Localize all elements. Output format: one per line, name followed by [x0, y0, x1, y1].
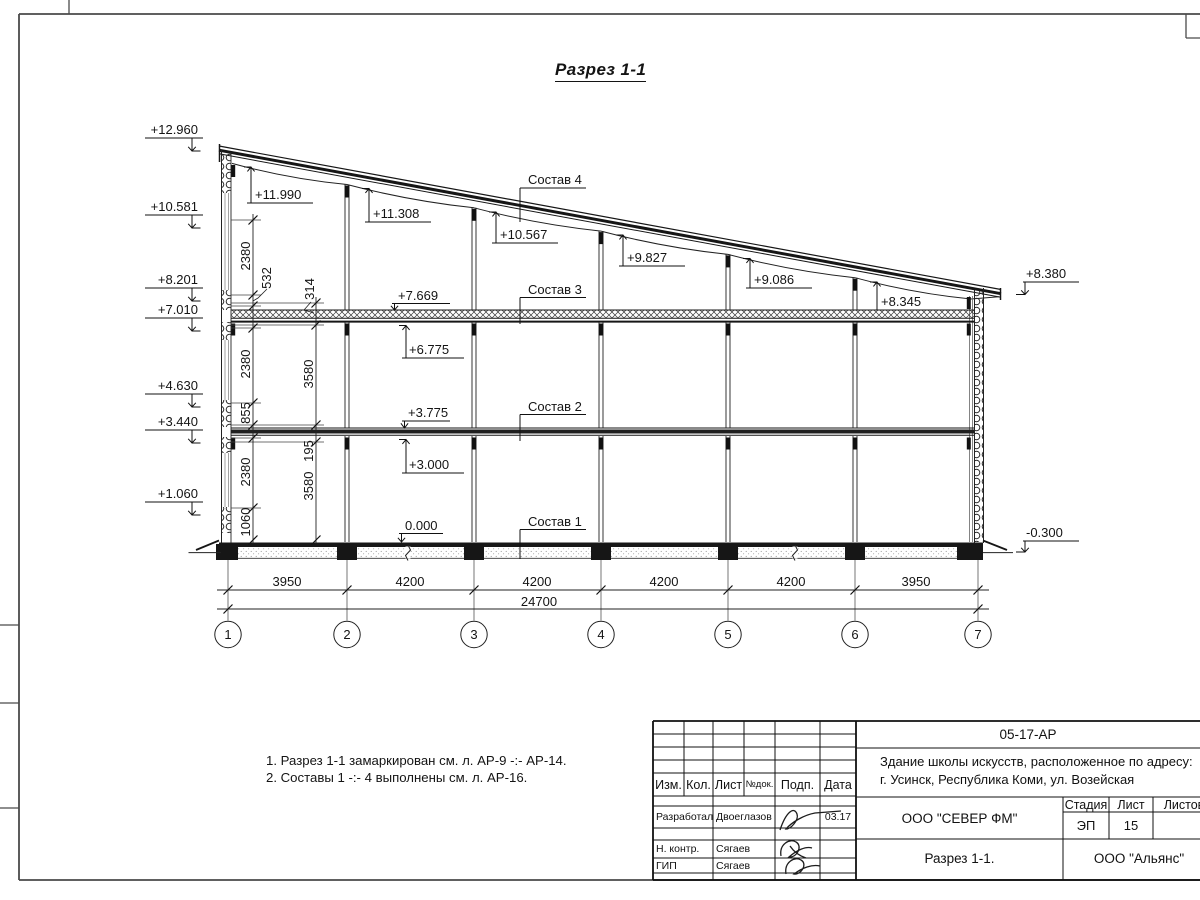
dim-label: 1060: [239, 502, 253, 542]
dim-label: 2380: [239, 236, 253, 276]
titleblock-role: Н. контр.: [656, 840, 712, 858]
composition-label: Состав 3: [528, 283, 588, 297]
composition-label: Состав 4: [528, 173, 588, 187]
drawing-sheet: Разрез 1-1 +12.960 +10.581 +8.201 +7.010…: [0, 0, 1200, 900]
titleblock-col-data: Дата: [820, 773, 856, 796]
elevation-marks-left: [145, 138, 203, 515]
dim-label: 2380: [239, 452, 253, 492]
roof-band: [219, 144, 1001, 300]
titleblock-sheets-label: Листов: [1153, 797, 1200, 812]
titleblock-project-line2: г. Усинск, Республика Коми, ул. Возейска…: [880, 771, 1200, 788]
titleblock-stage-value: ЭП: [1063, 812, 1109, 839]
titleblock-col-izm: Изм.: [653, 773, 684, 796]
elevation-marks-right: [1016, 282, 1079, 552]
left-wall: [222, 150, 232, 543]
note-line: 2. Составы 1 -:- 4 выполнены см. л. АР-1…: [266, 771, 527, 785]
drawing-title: Разрез 1-1: [555, 60, 646, 82]
dim-label: 3580: [302, 466, 316, 506]
dim-label: 4200: [642, 575, 686, 589]
titleblock-role: Разработал: [656, 806, 712, 828]
dim-label: 2380: [239, 344, 253, 384]
titleblock-name: Сягаев: [716, 840, 774, 858]
titleblock-name: Сягаев: [716, 858, 774, 873]
elevation-label: +11.308: [373, 207, 429, 221]
drawing-title-wrap: Разрез 1-1: [555, 60, 655, 80]
elevation-label: +8.345: [881, 295, 937, 309]
elevation-label: +11.990: [255, 188, 311, 202]
elevation-label: +1.060: [146, 487, 198, 501]
titleblock-col-ndok: №док.: [744, 773, 775, 796]
axis-bubble-label: 6: [842, 628, 868, 642]
dim-label: 4200: [388, 575, 432, 589]
titleblock-company: ООО "СЕВЕР ФМ": [856, 797, 1063, 839]
elevation-label: +3.440: [146, 415, 198, 429]
dim-label: 3950: [265, 575, 309, 589]
axis-bubble-label: 2: [334, 628, 360, 642]
titleblock-doc-number: 05-17-АР: [856, 721, 1200, 748]
dim-label: 3950: [894, 575, 938, 589]
elevation-label: +4.630: [146, 379, 198, 393]
elevation-marks-floors: [391, 304, 464, 543]
dim-label: 314: [303, 272, 317, 306]
elevation-label: +3.000: [409, 458, 461, 472]
titleblock-sheet-label: Лист: [1109, 797, 1153, 812]
composition-label: Состав 2: [528, 400, 588, 414]
titleblock-date: 03.17: [820, 806, 856, 828]
titleblock-stage-label: Стадия: [1063, 797, 1109, 812]
floor-slab-1: [231, 428, 974, 435]
elevation-label: +12.960: [146, 123, 198, 137]
elevation-label: +8.201: [146, 273, 198, 287]
floor-slab-2: [231, 310, 974, 322]
dim-label: 532: [260, 261, 274, 295]
titleblock-col-podp: Подп.: [775, 773, 820, 796]
titleblock-role: ГИП: [656, 858, 712, 873]
note-line: 1. Разрез 1-1 замаркирован см. л. АР-9 -…: [266, 754, 567, 768]
elevation-label: +9.827: [627, 251, 683, 265]
titleblock-project-line1: Здание школы искусств, расположенное по …: [880, 753, 1200, 770]
elevation-label: +7.669: [398, 289, 450, 303]
dim-label: 195: [302, 434, 316, 468]
titleblock-col-kol: Кол.: [684, 773, 713, 796]
elevation-label: +6.775: [409, 343, 461, 357]
titleblock-col-list: Лист: [713, 773, 744, 796]
elevation-label: +3.775: [408, 406, 460, 420]
dim-label: 3580: [302, 354, 316, 394]
elevation-label: +8.380: [1026, 267, 1079, 281]
dim-total-label: 24700: [511, 595, 567, 609]
elevation-label: +10.581: [146, 200, 198, 214]
titleblock-sheet-title: Разрез 1-1.: [856, 839, 1063, 877]
elevation-label: +7.010: [146, 303, 198, 317]
axis-bubble-label: 4: [588, 628, 614, 642]
roof-beams: [232, 163, 999, 299]
dim-label: 4200: [515, 575, 559, 589]
titleblock-name: Двоеглазов: [716, 806, 774, 828]
elevation-label: +10.567: [500, 228, 556, 242]
titleblock-contractor: ООО "Альянс": [1063, 839, 1200, 877]
column-connectors: [231, 165, 971, 450]
dim-label: 855: [239, 396, 253, 430]
elevation-label: -0.300: [1026, 526, 1079, 540]
titleblock-sheet-value: 15: [1109, 812, 1153, 839]
axis-bubble-label: 5: [715, 628, 741, 642]
axis-bubble-label: 1: [215, 628, 241, 642]
axis-bubble-label: 7: [965, 628, 991, 642]
right-wall: [970, 288, 984, 543]
elevation-label: +9.086: [754, 273, 810, 287]
dim-label: 4200: [769, 575, 813, 589]
axis-bubble-label: 3: [461, 628, 487, 642]
composition-leaders: [520, 188, 586, 559]
elevation-label: 0.000: [405, 519, 457, 533]
composition-label: Состав 1: [528, 515, 588, 529]
